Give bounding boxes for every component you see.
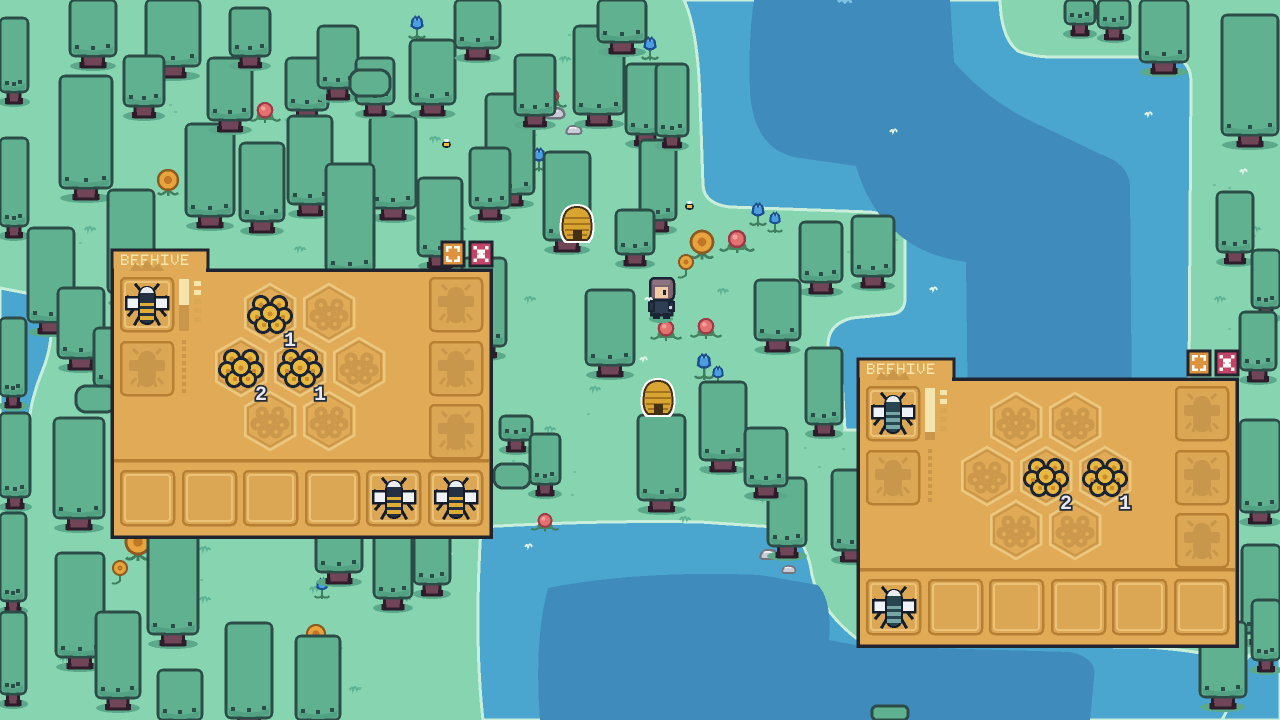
svg-text:1: 1: [284, 330, 296, 353]
svg-text:2: 2: [1060, 493, 1072, 516]
svg-text:1: 1: [1119, 493, 1131, 516]
svg-text:2: 2: [255, 384, 267, 407]
svg-text:1: 1: [314, 384, 326, 407]
